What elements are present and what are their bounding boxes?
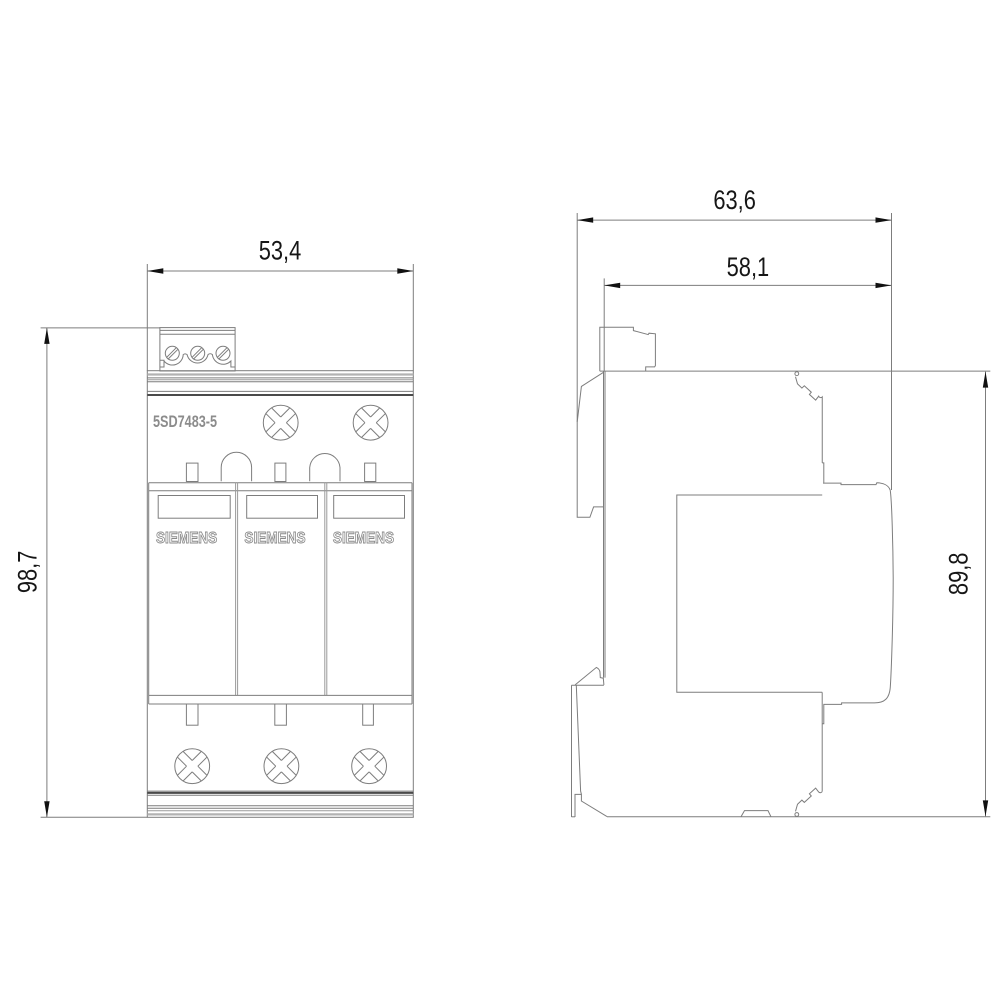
svg-text:SIEMENS: SIEMENS: [333, 530, 394, 547]
svg-text:63,6: 63,6: [713, 186, 756, 216]
svg-text:SIEMENS: SIEMENS: [244, 530, 305, 547]
svg-text:58,1: 58,1: [727, 253, 770, 283]
svg-text:98,7: 98,7: [13, 551, 43, 594]
svg-text:53,4: 53,4: [259, 236, 302, 266]
svg-text:89,8: 89,8: [945, 553, 975, 596]
svg-text:SIEMENS: SIEMENS: [156, 530, 217, 547]
svg-text:5SD7483-5: 5SD7483-5: [153, 412, 217, 431]
